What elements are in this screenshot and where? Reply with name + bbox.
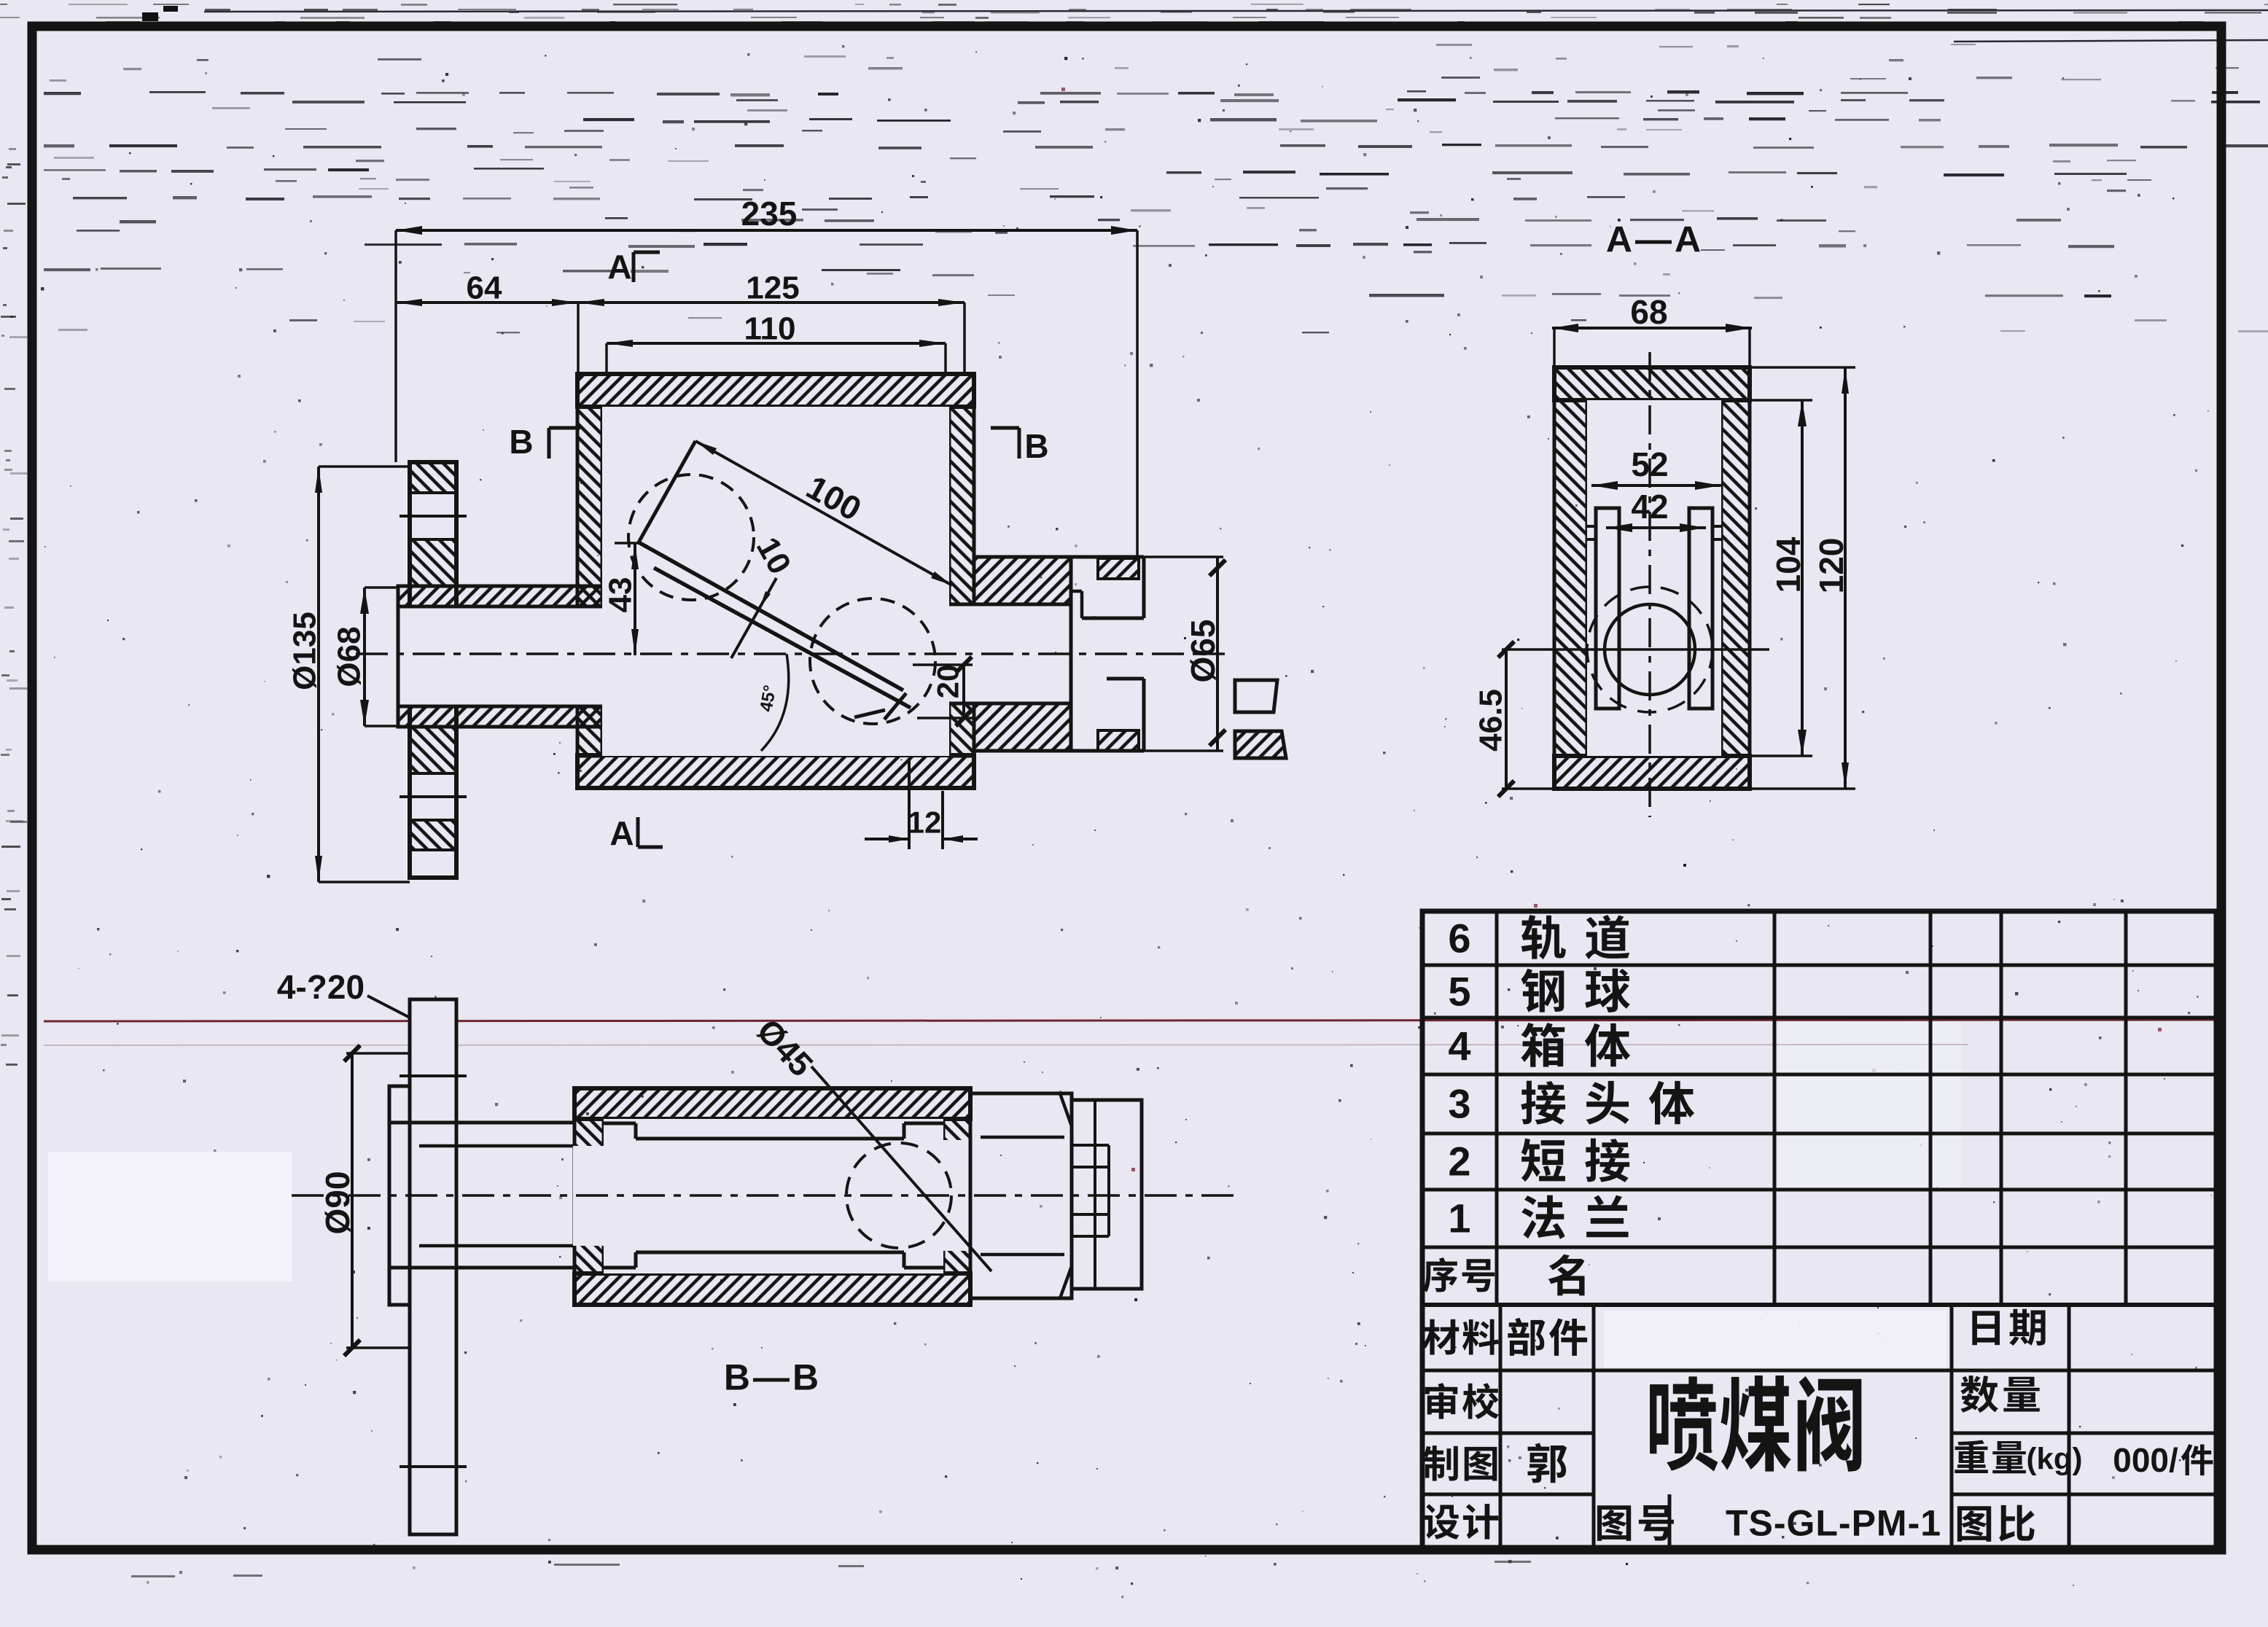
svg-text:A: A [609,814,634,852]
svg-text:B—B: B—B [724,1357,822,1398]
svg-text:B: B [509,423,533,461]
svg-text:Ø68: Ø68 [331,626,367,687]
svg-text:5: 5 [1448,969,1470,1015]
svg-text:4-?20: 4-?20 [277,968,365,1006]
svg-text:A—A: A—A [1606,219,1704,260]
svg-text:Ø65: Ø65 [1184,620,1222,683]
svg-text:1: 1 [1448,1195,1470,1241]
svg-text:4: 4 [1448,1023,1470,1069]
svg-text:B: B [1024,427,1048,465]
svg-text:104: 104 [1769,537,1807,593]
svg-text:125: 125 [746,270,799,305]
svg-text:110: 110 [744,311,796,346]
svg-text:2: 2 [1448,1139,1470,1185]
svg-text:64: 64 [467,270,502,305]
svg-text:52: 52 [1631,445,1668,483]
svg-text:42: 42 [1631,488,1668,526]
svg-text:235: 235 [741,195,798,233]
svg-text:TS-GL-PM-1: TS-GL-PM-1 [1726,1503,1941,1544]
svg-text:A: A [607,248,631,286]
svg-text:68: 68 [1630,293,1667,331]
svg-text:6: 6 [1448,916,1470,961]
svg-text:000/: 000/ [2113,1441,2178,1479]
svg-text:(kg): (kg) [2027,1442,2083,1476]
svg-text:20: 20 [931,665,965,699]
svg-text:46.5: 46.5 [1473,689,1508,752]
svg-text:Ø135: Ø135 [287,612,322,690]
svg-text:43: 43 [602,577,638,613]
svg-text:Ø90: Ø90 [319,1171,356,1235]
svg-text:12: 12 [908,805,942,840]
svg-text:120: 120 [1812,538,1850,594]
svg-text:3: 3 [1448,1081,1470,1127]
